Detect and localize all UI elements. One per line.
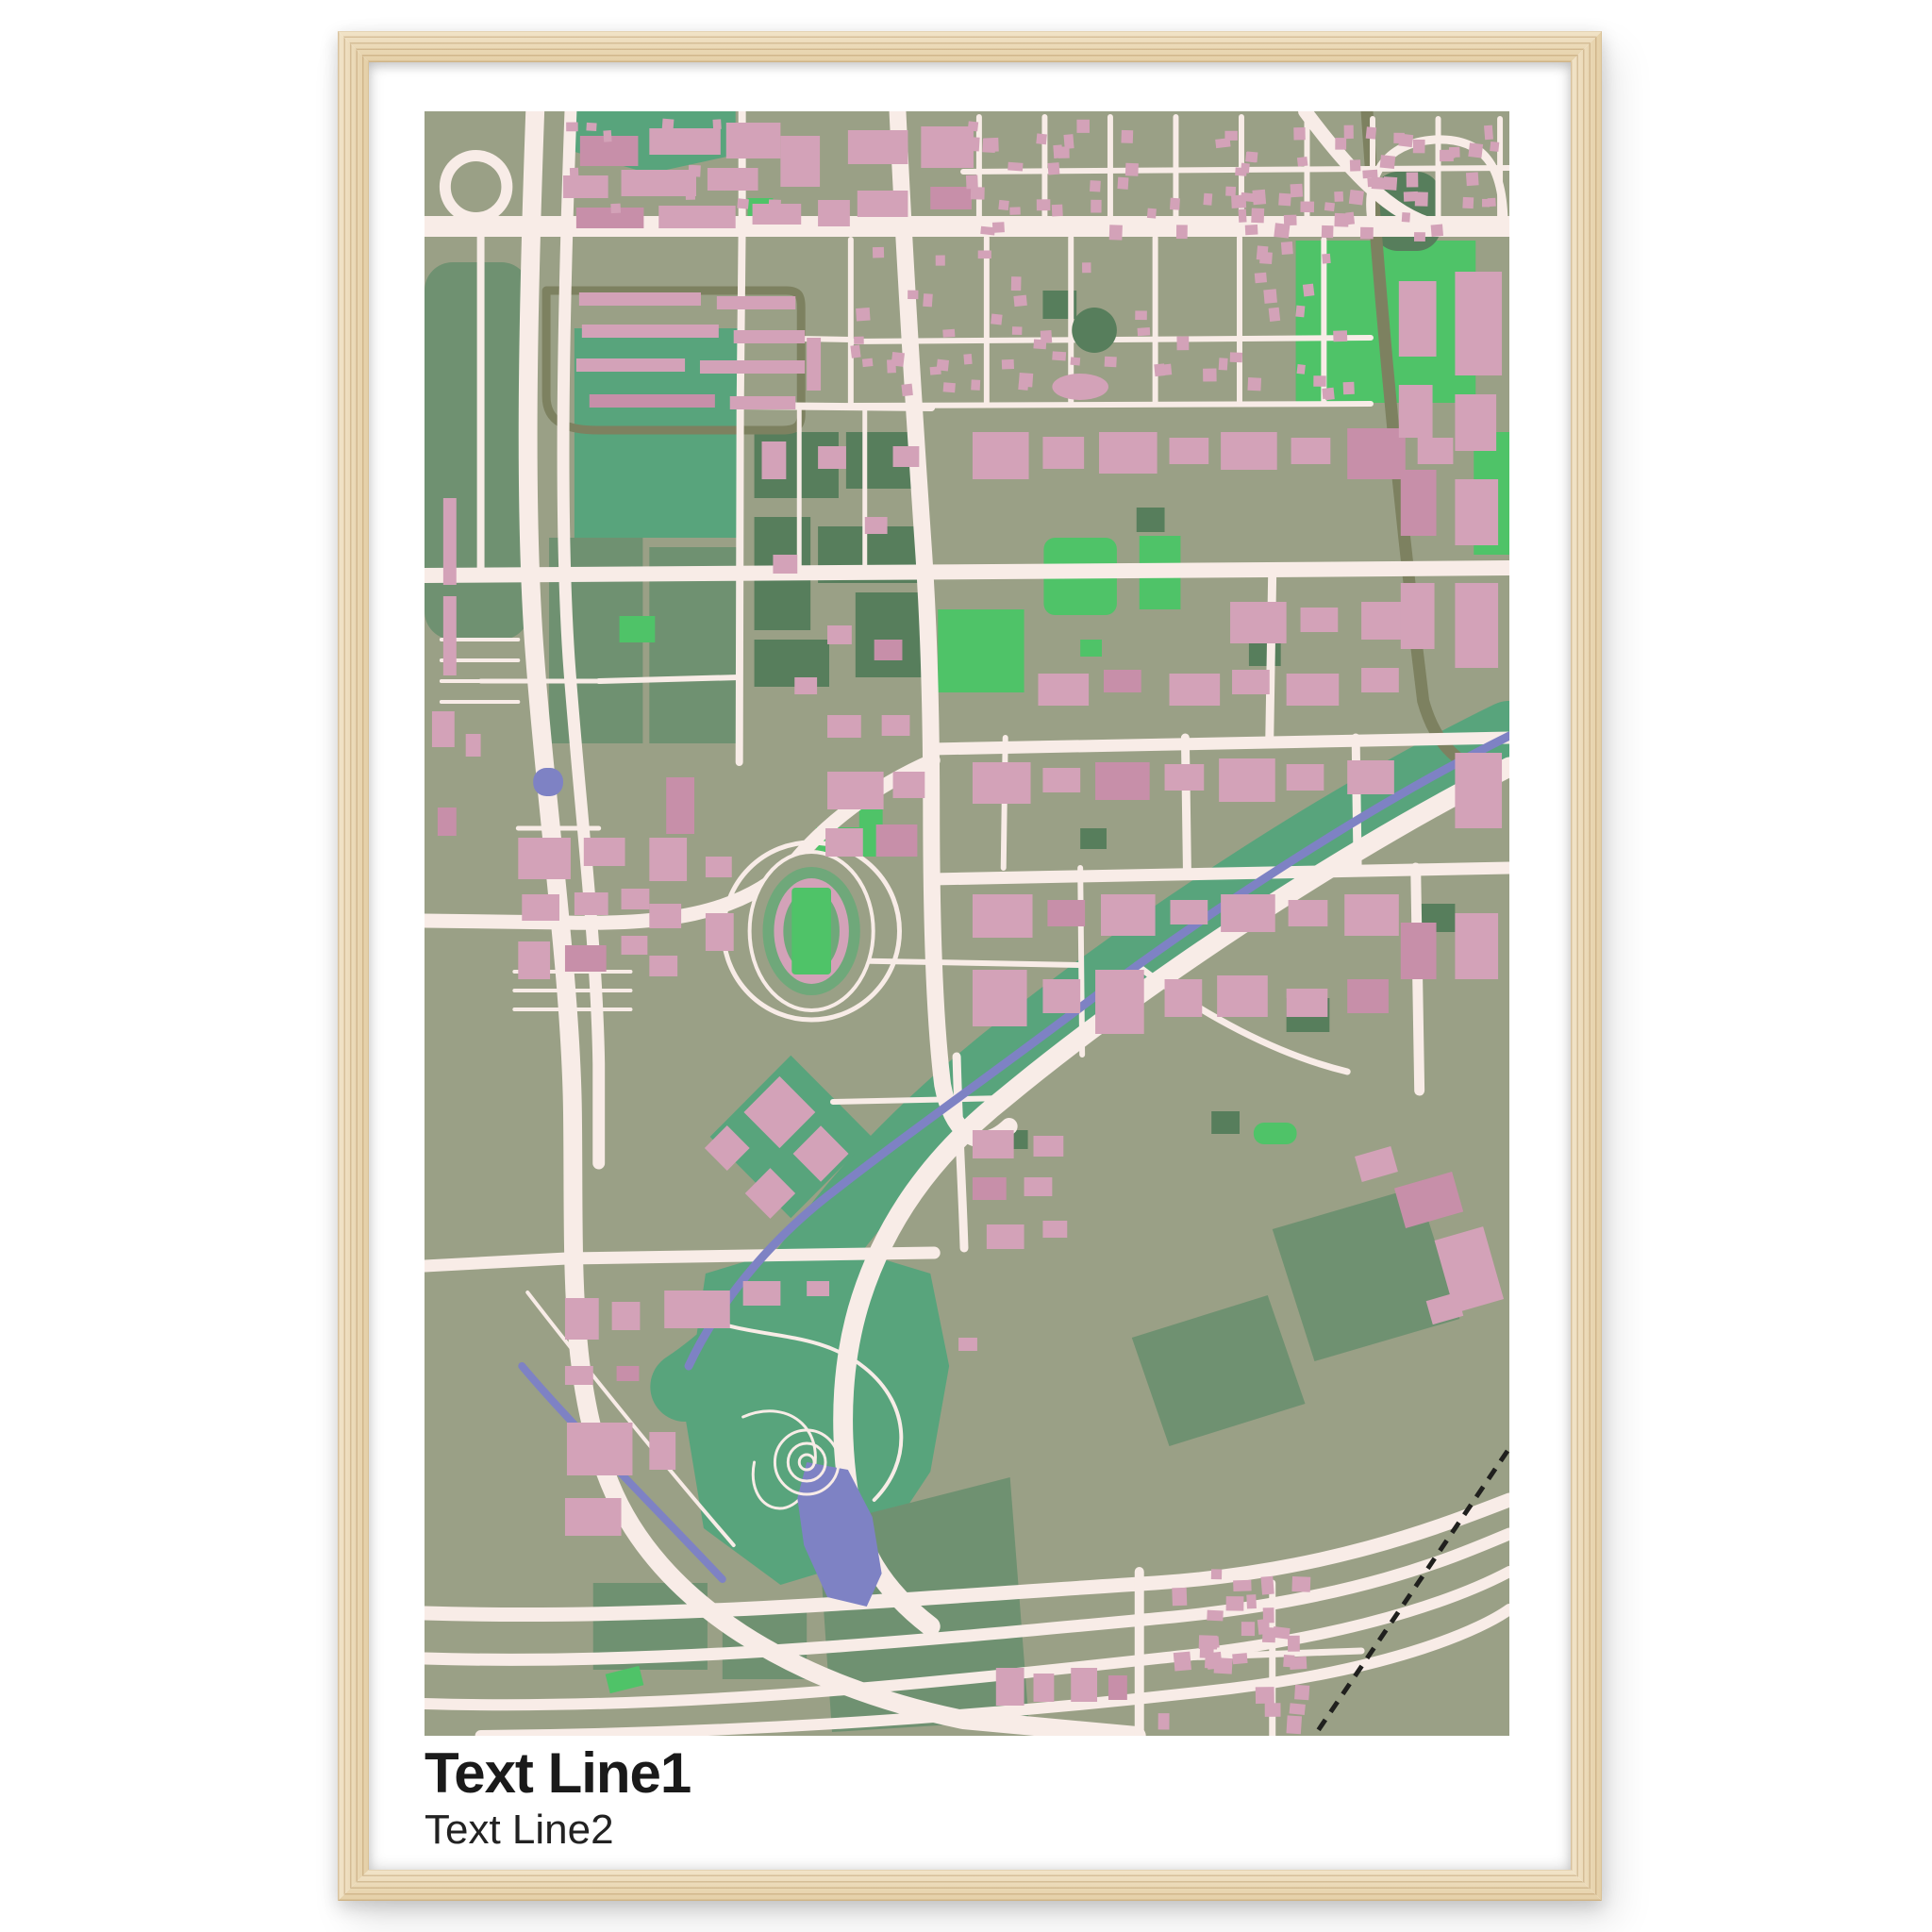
frame-edge-bottom [338, 1870, 1602, 1901]
poster-title: Text Line1 [425, 1743, 691, 1803]
poster-frame: Text Line1 Text Line2 [338, 31, 1602, 1901]
stadium [750, 852, 874, 1010]
poster-subtitle: Text Line2 [425, 1808, 691, 1852]
frame-edge-right [1571, 31, 1602, 1901]
frame-edge-left [338, 31, 369, 1901]
map-area [425, 111, 1509, 1736]
caption-block: Text Line1 Text Line2 [425, 1743, 691, 1852]
frame-edge-top [338, 31, 1602, 62]
mockup-background: Text Line1 Text Line2 [0, 0, 1932, 1932]
map-graphic [425, 111, 1509, 1736]
poster-mat: Text Line1 Text Line2 [369, 62, 1571, 1870]
